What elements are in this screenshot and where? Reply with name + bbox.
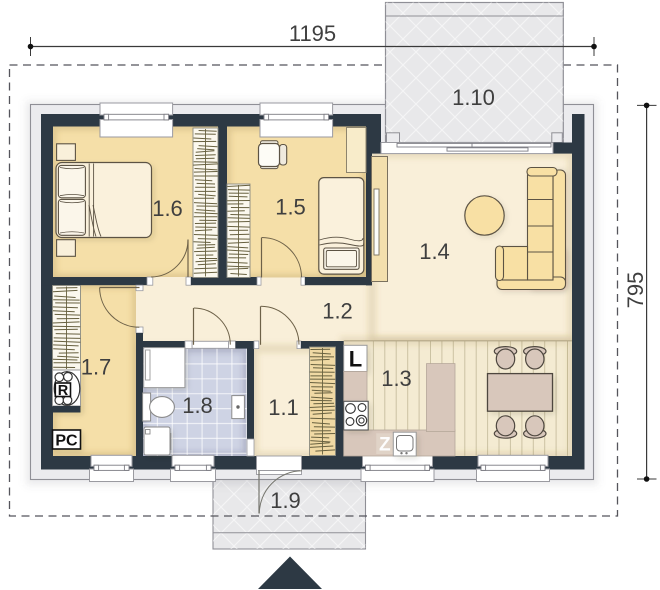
svg-text:1.4: 1.4 <box>419 239 450 264</box>
svg-text:Z: Z <box>379 435 391 456</box>
svg-text:1.10: 1.10 <box>452 85 495 110</box>
svg-text:R: R <box>58 383 69 399</box>
svg-text:PC: PC <box>55 433 78 450</box>
svg-text:1.7: 1.7 <box>81 355 112 380</box>
svg-text:1195: 1195 <box>289 21 336 46</box>
svg-text:1.6: 1.6 <box>152 196 183 221</box>
svg-text:795: 795 <box>623 272 648 309</box>
svg-text:1.5: 1.5 <box>275 195 306 220</box>
svg-text:1.3: 1.3 <box>381 366 412 391</box>
svg-text:1.8: 1.8 <box>182 393 213 418</box>
svg-text:1.9: 1.9 <box>270 488 301 513</box>
svg-text:L: L <box>349 347 362 372</box>
svg-text:1.1: 1.1 <box>268 395 299 420</box>
svg-text:1.2: 1.2 <box>322 299 353 324</box>
